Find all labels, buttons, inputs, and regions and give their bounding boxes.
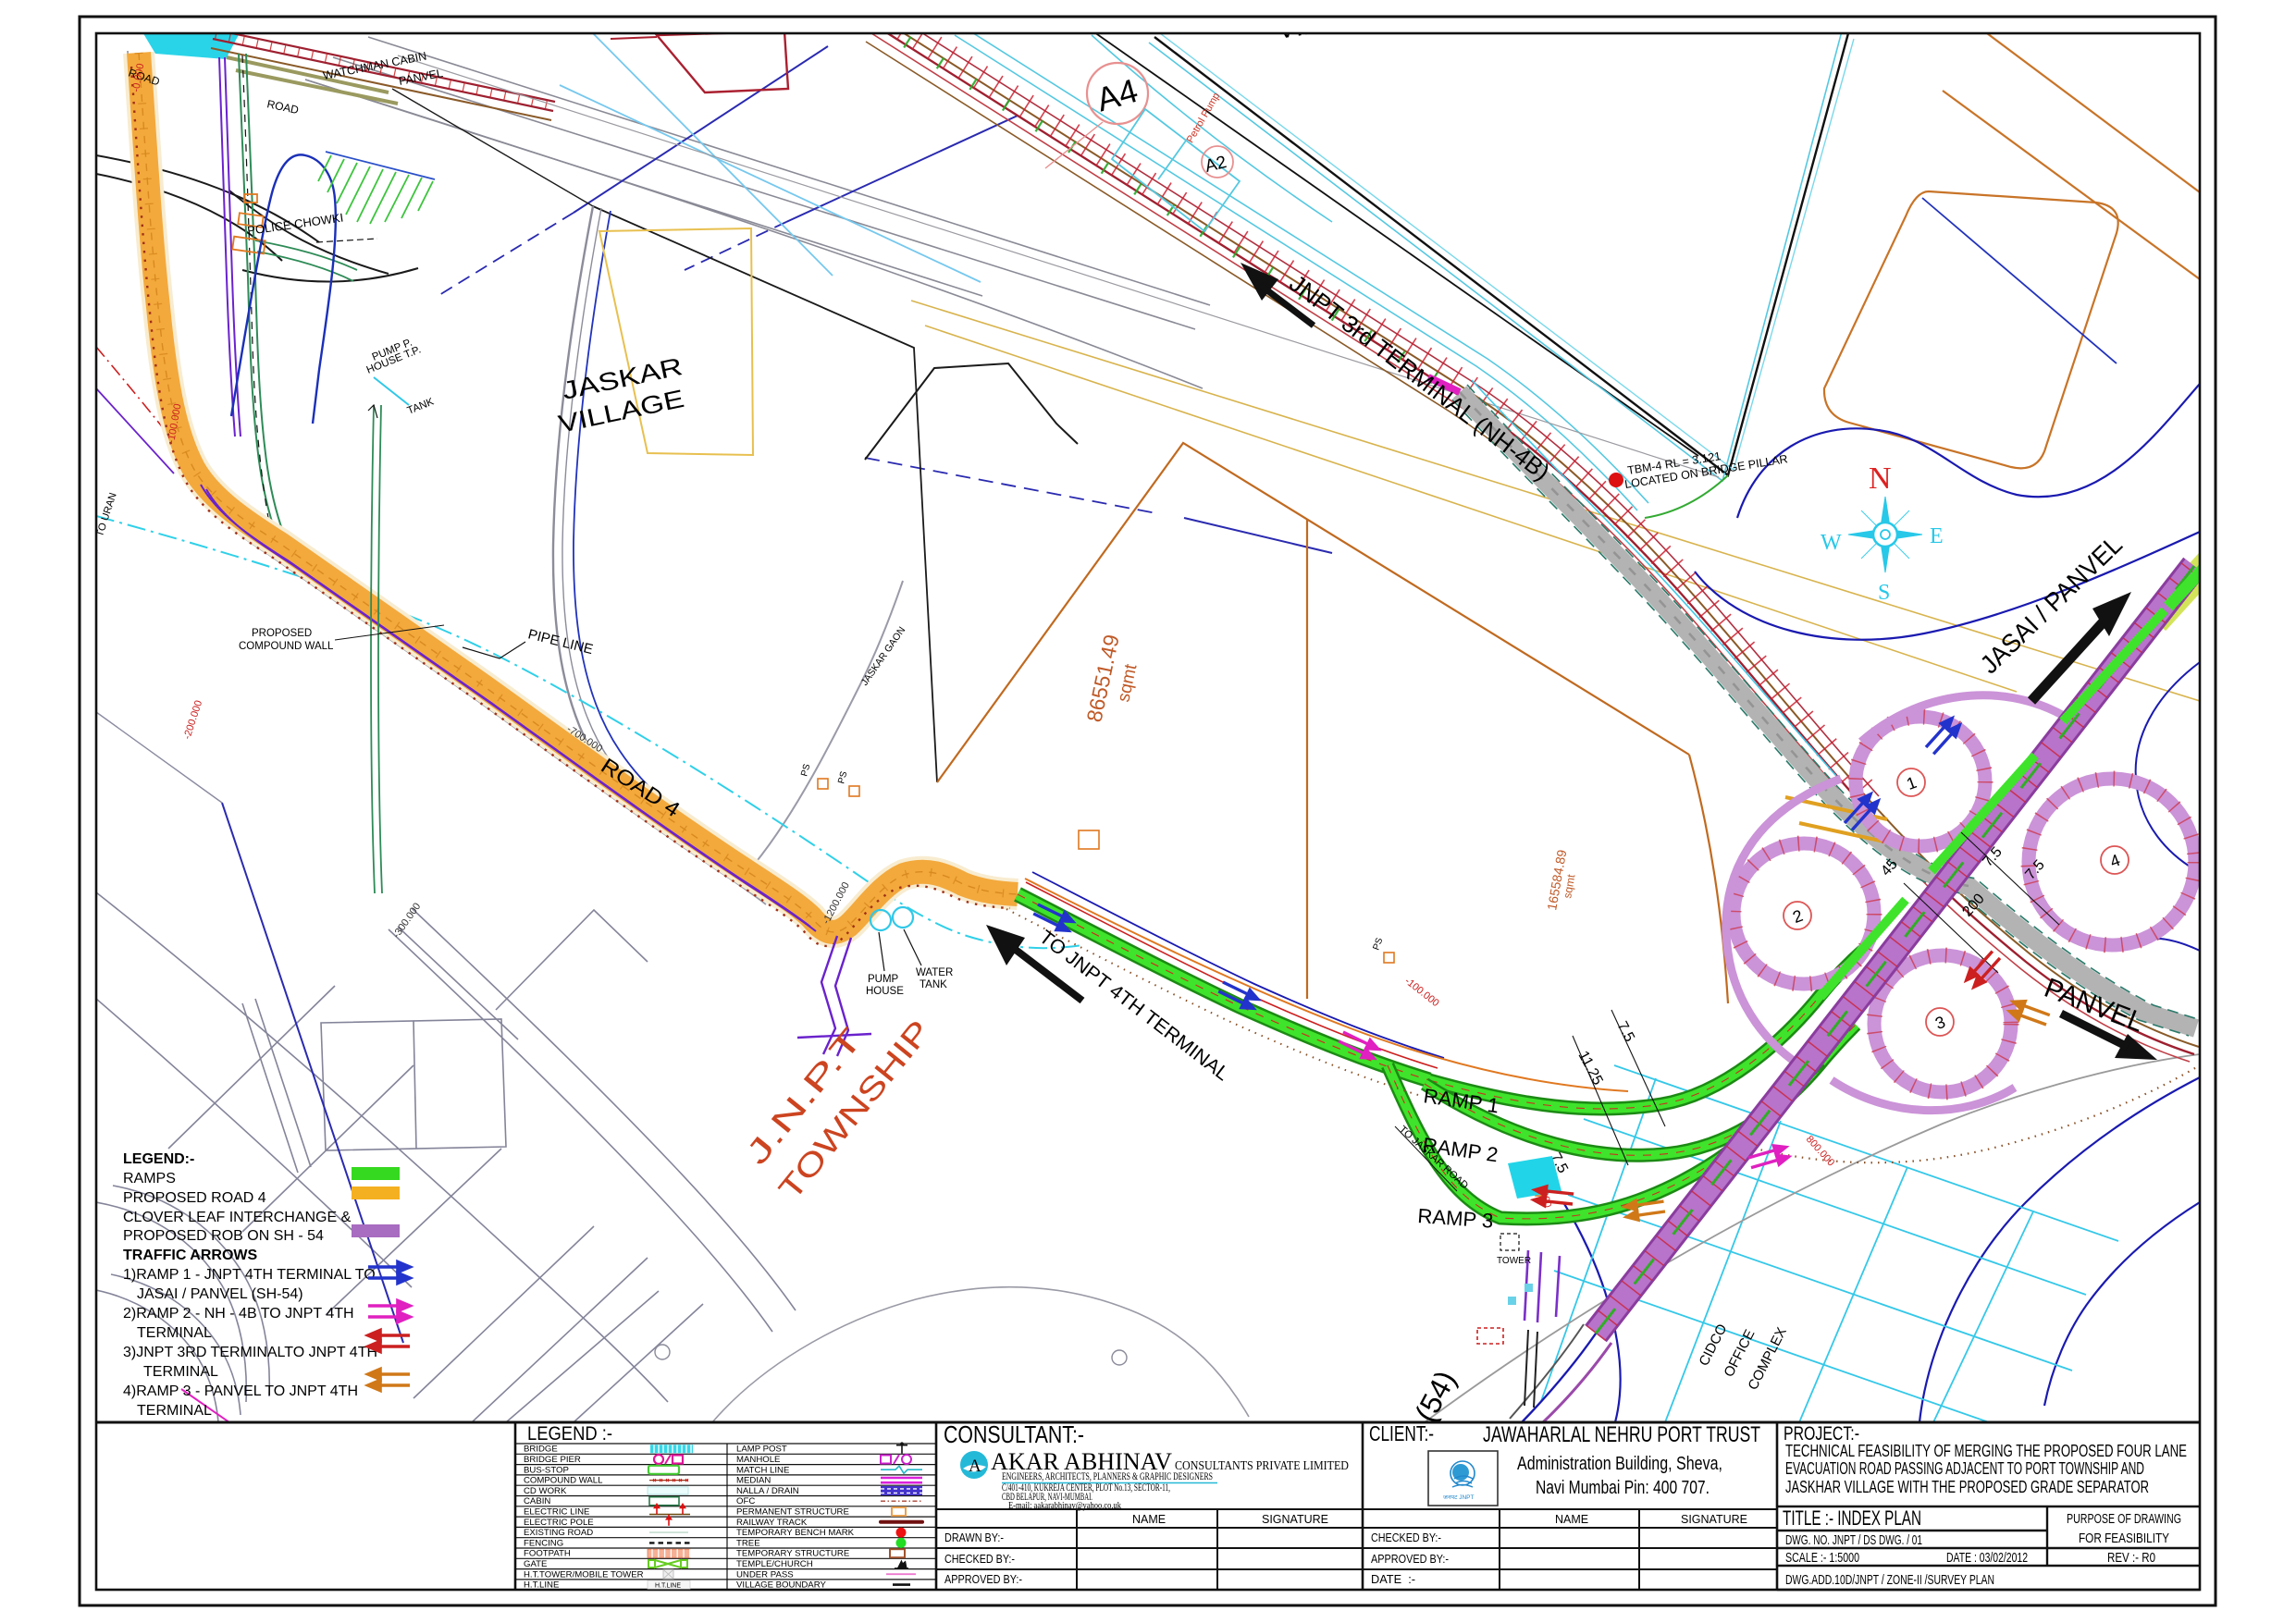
svg-text:DRAWN BY:-: DRAWN BY:-: [944, 1531, 1004, 1544]
svg-text:1)RAMP 1 - JNPT 4TH TERMINAL T: 1)RAMP 1 - JNPT 4TH TERMINAL TO: [123, 1267, 376, 1283]
svg-text:MANHOLE: MANHOLE: [736, 1455, 780, 1465]
svg-text:COMPOUND WALL: COMPOUND WALL: [239, 641, 334, 652]
svg-text:LEGEND:-: LEGEND:-: [123, 1151, 194, 1167]
svg-text:A: A: [969, 1457, 981, 1476]
svg-text:H.T.LINE: H.T.LINE: [524, 1580, 559, 1591]
svg-text:EXISTING ROAD: EXISTING ROAD: [524, 1528, 593, 1538]
svg-text:CD WORK: CD WORK: [524, 1486, 567, 1496]
svg-text:UNDER PASS: UNDER PASS: [736, 1569, 794, 1580]
svg-text:NAME: NAME: [1555, 1513, 1588, 1526]
svg-text:CABIN: CABIN: [524, 1496, 550, 1506]
svg-text:EVACUATION ROAD PASSING ADJAC: EVACUATION ROAD PASSING ADJACENT TO PORT…: [1785, 1459, 2144, 1478]
svg-text:TREE: TREE: [736, 1538, 760, 1548]
svg-text:JAWAHARLAL NEHRU PORT TRUST: JAWAHARLAL NEHRU PORT TRUST: [1483, 1422, 1760, 1447]
svg-text:COMPOUND WALL: COMPOUND WALL: [524, 1476, 603, 1486]
svg-text:FOOTPATH: FOOTPATH: [524, 1549, 571, 1559]
svg-text:PURPOSE OF DRAWING: PURPOSE OF DRAWING: [2067, 1512, 2181, 1527]
svg-text:H.T.TOWER/MOBILE TOWER: H.T.TOWER/MOBILE TOWER: [524, 1569, 644, 1580]
svg-text:RAILWAY TRACK: RAILWAY TRACK: [736, 1518, 808, 1528]
svg-text:S: S: [1878, 581, 1890, 605]
svg-text:4)RAMP 3 - PANVEL TO JNPT 4TH: 4)RAMP 3 - PANVEL TO JNPT 4TH: [123, 1383, 358, 1399]
svg-text:CLIENT:-: CLIENT:-: [1369, 1421, 1434, 1445]
svg-text:JASKHAR VILLAGE WITH THE PROPO: JASKHAR VILLAGE WITH THE PROPOSED GRADE …: [1785, 1478, 2149, 1496]
svg-text:LEGEND :-: LEGEND :-: [527, 1423, 612, 1445]
svg-text:TITLE :- INDEX PLAN: TITLE :- INDEX PLAN: [1783, 1506, 1921, 1530]
svg-text:N: N: [1869, 461, 1892, 496]
svg-text:DWG. NO. JNPT / DS DWG. / 01: DWG. NO. JNPT / DS DWG. / 01: [1785, 1532, 1922, 1548]
svg-text:CLOVER LEAF INTERCHANGE &: CLOVER LEAF INTERCHANGE &: [123, 1210, 352, 1225]
svg-text:TOWER: TOWER: [1497, 1256, 1531, 1266]
svg-text:SCALE :- 1:5000: SCALE :- 1:5000: [1785, 1550, 1859, 1566]
svg-text:MATCH LINE: MATCH LINE: [736, 1465, 789, 1475]
svg-text:PROPOSED ROB ON SH - 54: PROPOSED ROB ON SH - 54: [123, 1228, 324, 1244]
svg-text:H.T.LINE: H.T.LINE: [655, 1582, 681, 1589]
svg-text:DATE : 03/02/2012: DATE : 03/02/2012: [1946, 1550, 2028, 1566]
svg-text:LAMP POST: LAMP POST: [736, 1445, 787, 1455]
svg-text:NAME: NAME: [1132, 1513, 1166, 1526]
svg-text:CHECKED BY:-: CHECKED BY:-: [1371, 1531, 1441, 1544]
svg-text:ELECTRIC POLE: ELECTRIC POLE: [524, 1518, 594, 1528]
svg-text:TERMINAL: TERMINAL: [137, 1325, 212, 1341]
svg-text:SIGNATURE: SIGNATURE: [1681, 1513, 1747, 1526]
svg-text:DATE :-: DATE :-: [1371, 1573, 1415, 1586]
svg-text:TEMPORARY BENCH MARK: TEMPORARY BENCH MARK: [736, 1528, 855, 1538]
svg-text:HOUSE: HOUSE: [866, 986, 904, 997]
svg-text:TERMINAL: TERMINAL: [143, 1364, 218, 1380]
svg-text:2)RAMP 2 - NH - 4B TO JNPT 4TH: 2)RAMP 2 - NH - 4B TO JNPT 4TH: [123, 1306, 354, 1322]
svg-text:CONSULTANT:-: CONSULTANT:-: [944, 1420, 1084, 1448]
svg-text:OFC: OFC: [736, 1496, 755, 1506]
svg-text:APPROVED BY:-: APPROVED BY:-: [944, 1573, 1022, 1586]
svg-text:BRIDGE PIER: BRIDGE PIER: [524, 1455, 581, 1465]
svg-text:PROPOSED ROAD 4: PROPOSED ROAD 4: [123, 1190, 266, 1206]
svg-text:TANK: TANK: [920, 979, 947, 990]
svg-text:VILLAGE BOUNDARY: VILLAGE BOUNDARY: [736, 1580, 826, 1591]
svg-text:TECHNICAL FEASIBILITY OF MERGI: TECHNICAL FEASIBILITY OF MERGING THE PRO…: [1785, 1442, 2187, 1460]
svg-text:ELECTRIC LINE: ELECTRIC LINE: [524, 1507, 589, 1518]
svg-text:3)JNPT 3RD TERMINALTO JNPT 4T: 3)JNPT 3RD TERMINALTO JNPT 4TH: [123, 1345, 377, 1360]
svg-text:SIGNATURE: SIGNATURE: [1262, 1513, 1328, 1526]
svg-text:NALLA / DRAIN: NALLA / DRAIN: [736, 1486, 799, 1496]
svg-text:APPROVED BY:-: APPROVED BY:-: [1371, 1553, 1449, 1566]
svg-text:MEDIAN: MEDIAN: [736, 1476, 771, 1486]
svg-text:RAMPS: RAMPS: [123, 1171, 176, 1187]
svg-text:PERMANENT STRUCTURE: PERMANENT STRUCTURE: [736, 1507, 849, 1518]
svg-text:Administration Building, Sheva: Administration Building, Sheva,: [1517, 1454, 1722, 1474]
svg-text:TERMINAL: TERMINAL: [137, 1403, 212, 1419]
svg-text:TEMPORARY STRUCTURE: TEMPORARY STRUCTURE: [736, 1549, 849, 1559]
svg-text:W: W: [1821, 531, 1842, 555]
svg-text:ENGINEERS, ARCHITECTS, PLANNER: ENGINEERS, ARCHITECTS, PLANNERS & GRAPHI…: [1002, 1469, 1213, 1482]
svg-text:JASAI / PANVEL (SH-54): JASAI / PANVEL (SH-54): [137, 1286, 303, 1302]
svg-text:PUMP: PUMP: [868, 974, 899, 985]
svg-text:CHECKED BY:-: CHECKED BY:-: [944, 1553, 1015, 1566]
svg-text:PROPOSED: PROPOSED: [252, 628, 312, 639]
svg-text:Navi Mumbai Pin: 400 707.: Navi Mumbai Pin: 400 707.: [1536, 1478, 1710, 1498]
svg-text:FENCING: FENCING: [524, 1538, 563, 1548]
svg-text:WATER: WATER: [916, 967, 953, 978]
svg-text:जनपट JNPT: जनपट JNPT: [1443, 1494, 1474, 1501]
svg-text:TRAFFIC ARROWS: TRAFFIC ARROWS: [123, 1248, 257, 1263]
svg-text:FOR FEASIBILITY: FOR FEASIBILITY: [2079, 1531, 2169, 1546]
svg-text:GATE: GATE: [524, 1559, 547, 1569]
svg-text:DWG.ADD.10D/JNPT / ZONE-II /SU: DWG.ADD.10D/JNPT / ZONE-II /SURVEY PLAN: [1785, 1572, 1994, 1588]
svg-text:E: E: [1930, 524, 1944, 548]
svg-text:BUS-STOP: BUS-STOP: [524, 1465, 569, 1475]
svg-text:TEMPLE/CHURCH: TEMPLE/CHURCH: [736, 1559, 813, 1569]
svg-text:REV :- R0: REV :- R0: [2107, 1550, 2155, 1566]
svg-text:BRIDGE: BRIDGE: [524, 1445, 558, 1455]
